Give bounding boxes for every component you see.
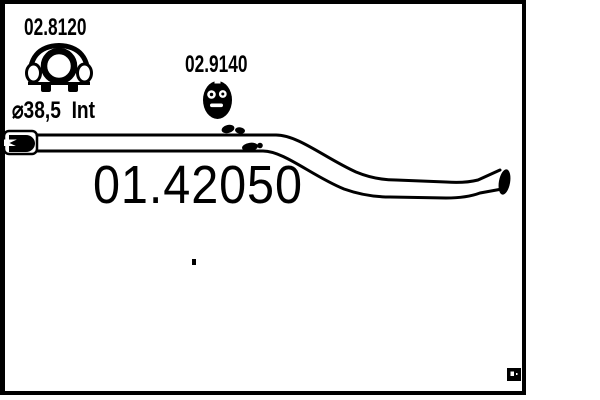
clamp-a-right-foot <box>68 84 78 92</box>
band-clamp-icon <box>203 80 232 120</box>
corner-marker-speck <box>516 373 518 375</box>
weld-hook-top-2 <box>235 127 246 135</box>
clamp-a-left-lobe <box>27 64 41 82</box>
pipe-inlet-flange <box>4 131 37 154</box>
pipe-outlet-end <box>497 168 512 195</box>
catalog-diagram-page: 02.8120 02.9140 ⌀38,5 Int 01.42050 43 <box>0 0 600 400</box>
weld-hook-top <box>221 124 236 135</box>
clamp-b-left-bolt-center <box>210 93 213 96</box>
pipe-bottom-line <box>37 151 502 198</box>
clamp-a-ring <box>44 51 74 81</box>
pipe-body <box>37 124 512 198</box>
exhaust-pipe-diagram <box>0 0 600 400</box>
corner-marker-notch <box>511 372 515 377</box>
clamp-b-body <box>203 81 232 119</box>
strap-clamp-icon <box>27 46 92 93</box>
reference-dot <box>192 259 196 265</box>
clamp-b-top-notch <box>215 80 221 84</box>
clamp-a-right-lobe <box>78 64 92 82</box>
clamp-b-right-bolt-center <box>221 93 224 96</box>
clamp-a-left-foot <box>41 84 51 92</box>
weld-bracket-bottom-2 <box>257 143 263 149</box>
clamp-b-slot <box>210 104 223 108</box>
pipe-top-line <box>37 135 500 182</box>
corner-marker <box>507 368 521 381</box>
